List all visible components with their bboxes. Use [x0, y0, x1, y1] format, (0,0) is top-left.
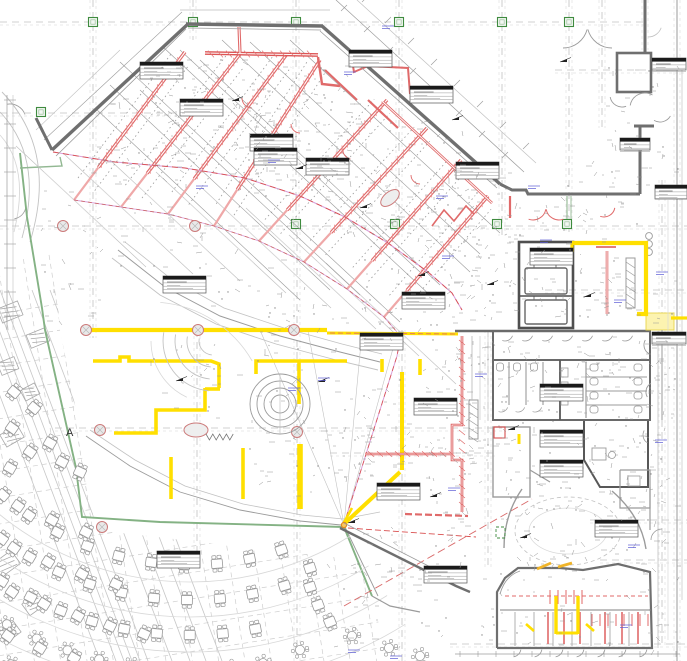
svg-text:A: A — [66, 427, 74, 439]
